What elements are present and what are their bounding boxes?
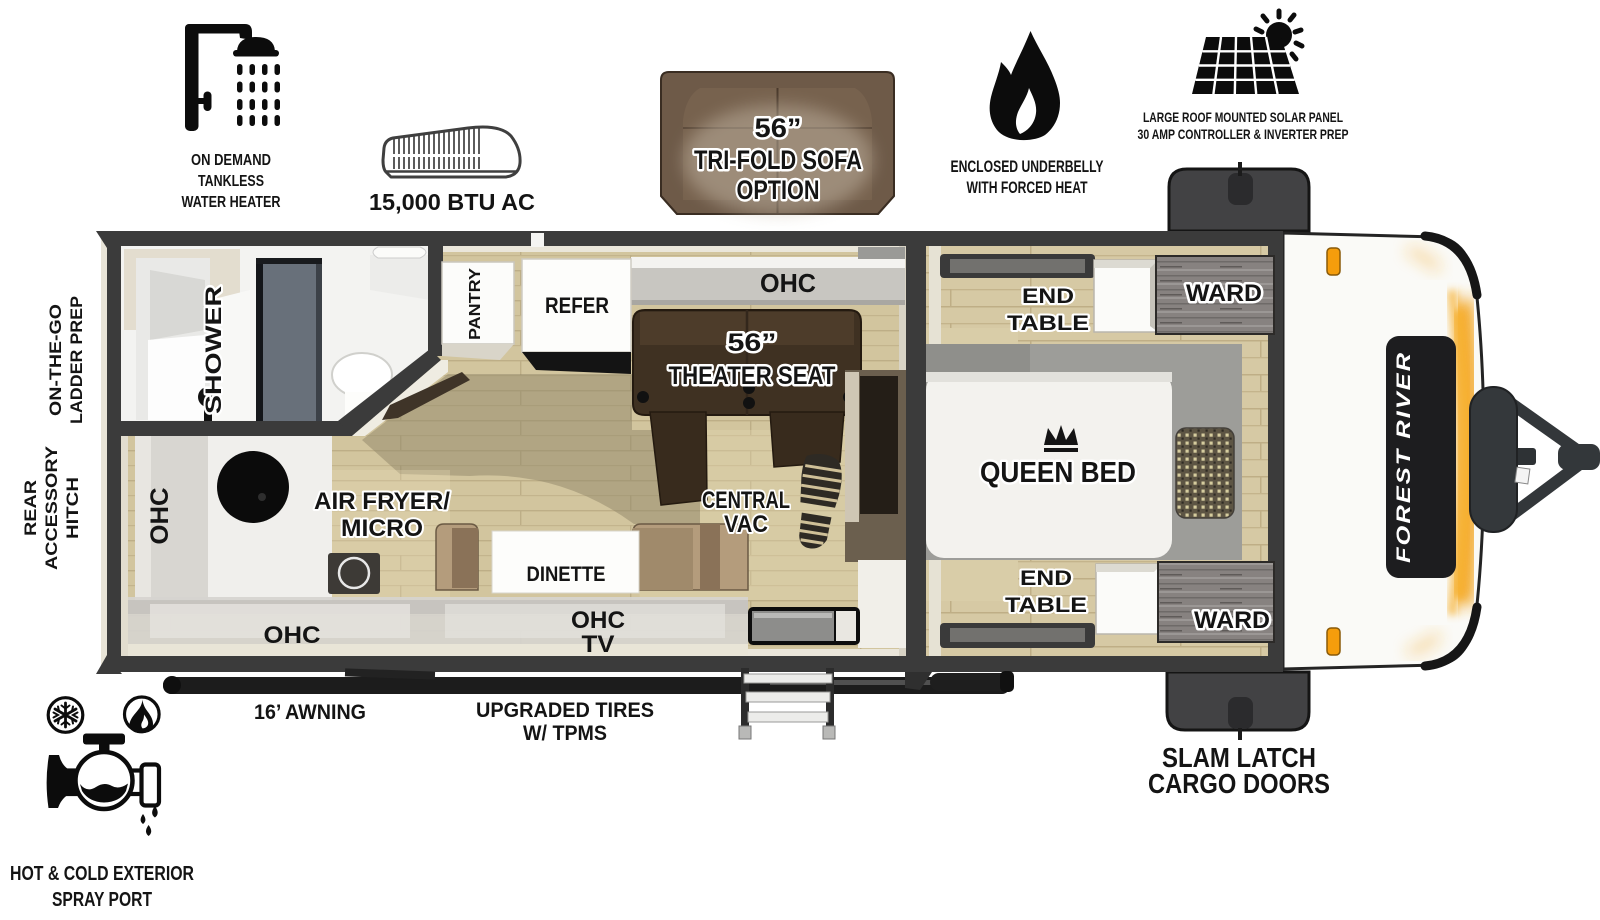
svg-text:ACCESSORY: ACCESSORY (42, 445, 61, 570)
svg-text:ON-THE-GO: ON-THE-GO (46, 304, 65, 416)
svg-text:OHC: OHC (146, 488, 174, 545)
svg-text:LADDER PREP: LADDER PREP (67, 296, 86, 424)
svg-text:WARD: WARD (1194, 607, 1270, 634)
svg-text:OPTION: OPTION (737, 175, 820, 205)
svg-text:WATER HEATER: WATER HEATER (182, 194, 281, 211)
svg-text:VAC: VAC (724, 511, 768, 538)
svg-text:56”: 56” (728, 329, 777, 357)
svg-text:END: END (1022, 285, 1074, 308)
svg-text:HITCH: HITCH (63, 477, 82, 539)
svg-text:QUEEN BED: QUEEN BED (980, 457, 1136, 489)
svg-text:ENCLOSED UNDERBELLY: ENCLOSED UNDERBELLY (951, 157, 1104, 176)
svg-text:56”: 56” (755, 113, 802, 143)
svg-text:CARGO DOORS: CARGO DOORS (1148, 768, 1330, 799)
svg-text:TANKLESS: TANKLESS (198, 173, 264, 190)
svg-text:TABLE: TABLE (1005, 594, 1087, 617)
svg-text:MICRO: MICRO (341, 515, 423, 542)
svg-text:THEATER SEAT: THEATER SEAT (669, 362, 836, 390)
svg-text:WITH FORCED HEAT: WITH FORCED HEAT (967, 178, 1088, 197)
svg-text:TRI-FOLD SOFA: TRI-FOLD SOFA (694, 145, 862, 175)
svg-text:30 AMP CONTROLLER & INVERTER P: 30 AMP CONTROLLER & INVERTER PREP (1138, 126, 1349, 142)
svg-text:LARGE ROOF MOUNTED SOLAR PANEL: LARGE ROOF MOUNTED SOLAR PANEL (1143, 109, 1343, 125)
svg-text:END: END (1020, 567, 1072, 590)
svg-text:SPRAY PORT: SPRAY PORT (52, 889, 152, 911)
svg-text:REAR: REAR (21, 480, 40, 536)
svg-text:SHOWER: SHOWER (201, 286, 226, 414)
svg-text:16’ AWNING: 16’ AWNING (254, 701, 366, 724)
svg-text:OHC: OHC (760, 268, 816, 298)
svg-text:OHC: OHC (571, 607, 625, 634)
svg-text:TABLE: TABLE (1007, 312, 1089, 335)
svg-text:CENTRAL: CENTRAL (702, 487, 790, 514)
svg-text:OHC: OHC (264, 622, 321, 649)
svg-text:W/ TPMS: W/ TPMS (523, 722, 607, 745)
svg-text:PANTRY: PANTRY (467, 268, 484, 340)
svg-text:UPGRADED TIRES: UPGRADED TIRES (476, 699, 654, 722)
svg-text:15,000 BTU AC: 15,000 BTU AC (369, 189, 535, 215)
svg-text:ON DEMAND: ON DEMAND (191, 152, 271, 169)
svg-text:HOT & COLD EXTERIOR: HOT & COLD EXTERIOR (10, 863, 194, 885)
svg-text:WARD: WARD (1186, 280, 1262, 307)
svg-text:TV: TV (582, 631, 615, 658)
svg-text:FOREST RIVER: FOREST RIVER (1394, 351, 1415, 563)
svg-text:REFER: REFER (545, 293, 609, 318)
svg-text:AIR FRYER/: AIR FRYER/ (314, 488, 450, 515)
svg-text:DINETTE: DINETTE (527, 563, 606, 586)
